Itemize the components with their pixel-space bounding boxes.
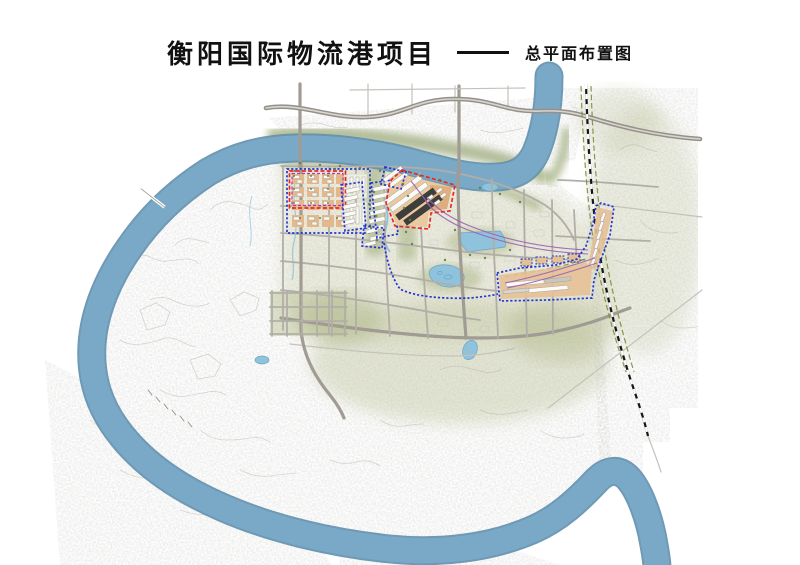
- site-plan-map: [0, 0, 800, 565]
- plan-sheet: 衡阳国际物流港项目 —— 总平面布置图: [0, 0, 800, 565]
- drawing-subtitle: 总平面布置图: [525, 40, 633, 64]
- sheet-header: 衡阳国际物流港项目 —— 总平面布置图: [0, 30, 800, 74]
- title-separator: ——: [457, 51, 509, 54]
- project-title: 衡阳国际物流港项目: [167, 34, 437, 71]
